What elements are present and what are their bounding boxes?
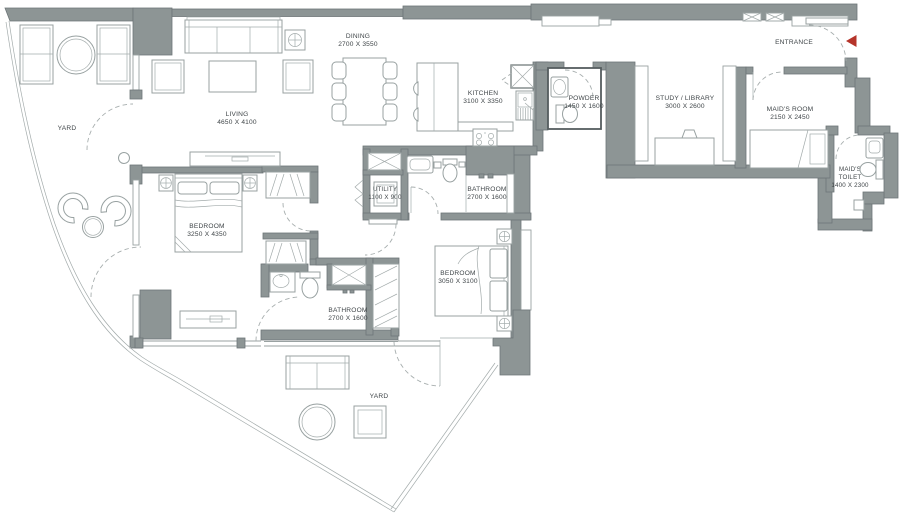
svg-text:BATHROOM: BATHROOM [467, 186, 506, 193]
svg-text:2700 X 3550: 2700 X 3550 [338, 41, 378, 48]
svg-text:YARD: YARD [370, 393, 389, 400]
svg-text:4650 X 4100: 4650 X 4100 [217, 119, 257, 126]
svg-text:2700 X 1600: 2700 X 1600 [328, 315, 368, 322]
svg-text:2150 X 2450: 2150 X 2450 [770, 114, 810, 121]
svg-text:ENTRANCE: ENTRANCE [775, 39, 813, 46]
svg-text:YARD: YARD [58, 125, 77, 132]
svg-text:UTILITY: UTILITY [373, 186, 397, 193]
svg-text:2700 X 1600: 2700 X 1600 [467, 194, 507, 201]
svg-text:LIVING: LIVING [226, 111, 249, 118]
svg-text:1450 X 1600: 1450 X 1600 [564, 103, 604, 110]
svg-text:1400 X 2300: 1400 X 2300 [831, 182, 869, 189]
svg-text:POWDER: POWDER [569, 95, 600, 102]
svg-text:3250 X 4350: 3250 X 4350 [187, 231, 227, 238]
svg-text:MAID'S: MAID'S [839, 166, 861, 173]
svg-text:DINING: DINING [346, 33, 370, 40]
svg-text:BEDROOM: BEDROOM [440, 270, 475, 277]
svg-text:3050 X 3100: 3050 X 3100 [438, 278, 478, 285]
svg-text:MAID'S ROOM: MAID'S ROOM [767, 106, 814, 113]
svg-text:TOILET: TOILET [839, 174, 862, 181]
svg-text:BATHROOM: BATHROOM [328, 307, 367, 314]
svg-text:3000 X 2600: 3000 X 2600 [665, 103, 705, 110]
svg-text:KITCHEN: KITCHEN [468, 90, 498, 97]
svg-text:STUDY / LIBRARY: STUDY / LIBRARY [656, 95, 715, 102]
svg-text:3100 X 3350: 3100 X 3350 [463, 98, 503, 105]
svg-text:BEDROOM: BEDROOM [189, 223, 224, 230]
